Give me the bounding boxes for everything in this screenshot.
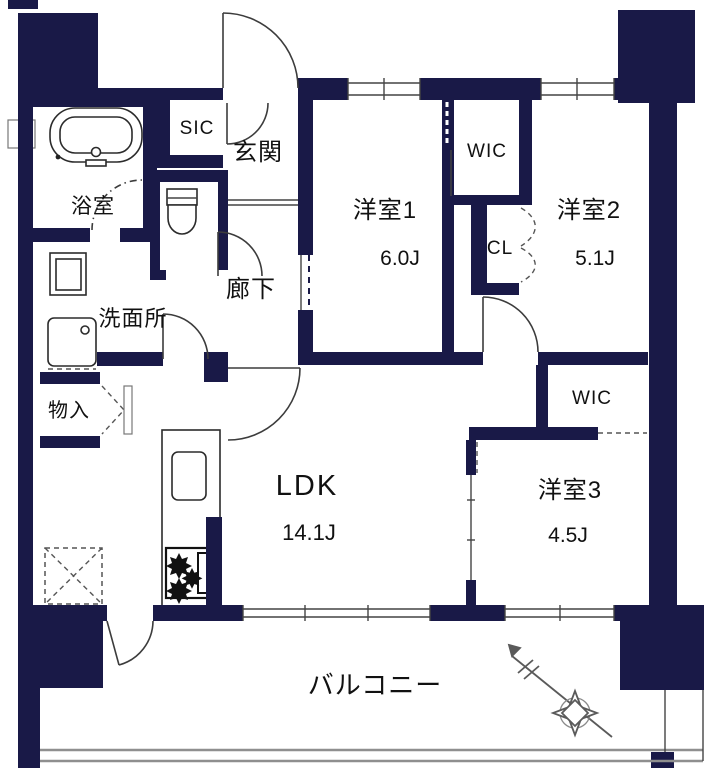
stove-icon [166, 548, 212, 604]
genkan-label: 玄関 [233, 139, 283, 166]
entrance-door [223, 13, 298, 88]
balcony-railing [40, 690, 703, 761]
balcony-label: バルコニー [308, 670, 442, 700]
bedroom1-sliding-door [298, 255, 313, 310]
ldk-label: LDK [276, 470, 338, 502]
bedroom1-size: 6.0J [380, 247, 420, 270]
bedroom3-size: 4.5J [548, 524, 588, 547]
wic2-label: WIC [572, 388, 612, 409]
genkan-step [223, 200, 298, 205]
washroom-door [163, 314, 208, 359]
storage-label: 物入 [48, 399, 90, 422]
toilet-icon [167, 189, 197, 234]
washing-machine-pan-icon [48, 318, 96, 369]
ldk-size: 14.1J [282, 520, 336, 545]
washroom-label: 洗面所 [98, 306, 167, 331]
vanity-icon [50, 253, 86, 295]
balcony-door [107, 621, 153, 665]
ldk-door [228, 368, 300, 440]
closet-label: CL [487, 238, 513, 259]
window-ldk-balcony [243, 605, 430, 621]
window-bedroom1-top [348, 78, 420, 100]
window-bedroom3-balcony [505, 605, 614, 621]
room-labels: 浴室 SIC 玄関 廊下 洗面所 物入 洋室1 6.0J WIC CL 洋室2 … [48, 118, 621, 700]
void-cross-box-icon [45, 548, 102, 604]
compass-rose-icon [509, 645, 612, 737]
sic-label: SIC [180, 118, 215, 139]
bedroom3-label: 洋室3 [538, 477, 602, 504]
hallway-label: 廊下 [226, 276, 276, 303]
bedroom1-label: 洋室1 [353, 197, 417, 224]
floor-plan-canvas: 浴室 SIC 玄関 廊下 洗面所 物入 洋室1 6.0J WIC CL 洋室2 … [0, 0, 718, 776]
kitchen-sink-icon [172, 452, 206, 500]
bathroom-label: 浴室 [71, 195, 115, 218]
window-bedroom2-top [541, 78, 614, 100]
bedroom2-door [483, 297, 538, 352]
storage-folding-door [102, 386, 132, 434]
sic-door [227, 103, 268, 144]
floor-plan: 浴室 SIC 玄関 廊下 洗面所 物入 洋室1 6.0J WIC CL 洋室2 … [0, 0, 718, 776]
bedroom2-label: 洋室2 [557, 197, 621, 224]
closet-bifold-doors [521, 208, 535, 282]
bedroom2-size: 5.1J [575, 247, 615, 270]
bathtub-icon [50, 108, 142, 166]
wic1-label: WIC [467, 141, 507, 162]
